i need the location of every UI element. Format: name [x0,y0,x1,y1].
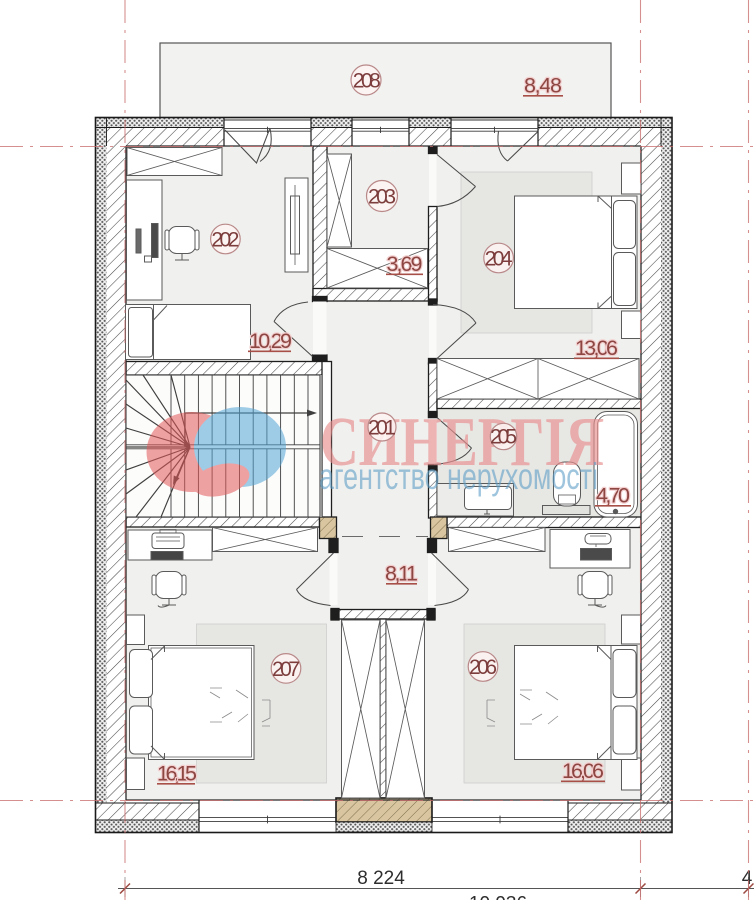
svg-text:207: 207 [272,658,300,681]
svg-text:208: 208 [353,69,381,92]
svg-text:13,06: 13,06 [575,336,618,360]
svg-text:агентство нерухомості: агентство нерухомості [319,456,598,497]
svg-text:10 936: 10 936 [469,894,527,900]
svg-text:3,69: 3,69 [387,252,423,276]
svg-text:205: 205 [490,425,517,448]
svg-text:206: 206 [469,656,497,679]
svg-text:8 224: 8 224 [357,868,405,889]
svg-text:202: 202 [211,229,239,252]
svg-text:203: 203 [368,186,396,209]
svg-text:8,48: 8,48 [524,74,562,98]
svg-text:8,11: 8,11 [385,562,418,586]
svg-text:4,70: 4,70 [596,484,630,508]
svg-text:16,06: 16,06 [562,759,604,783]
svg-text:201: 201 [368,417,396,440]
svg-text:204: 204 [485,248,513,271]
svg-text:16,15: 16,15 [157,762,197,786]
svg-text:10,29: 10,29 [249,329,292,353]
svg-text:4: 4 [742,868,753,889]
